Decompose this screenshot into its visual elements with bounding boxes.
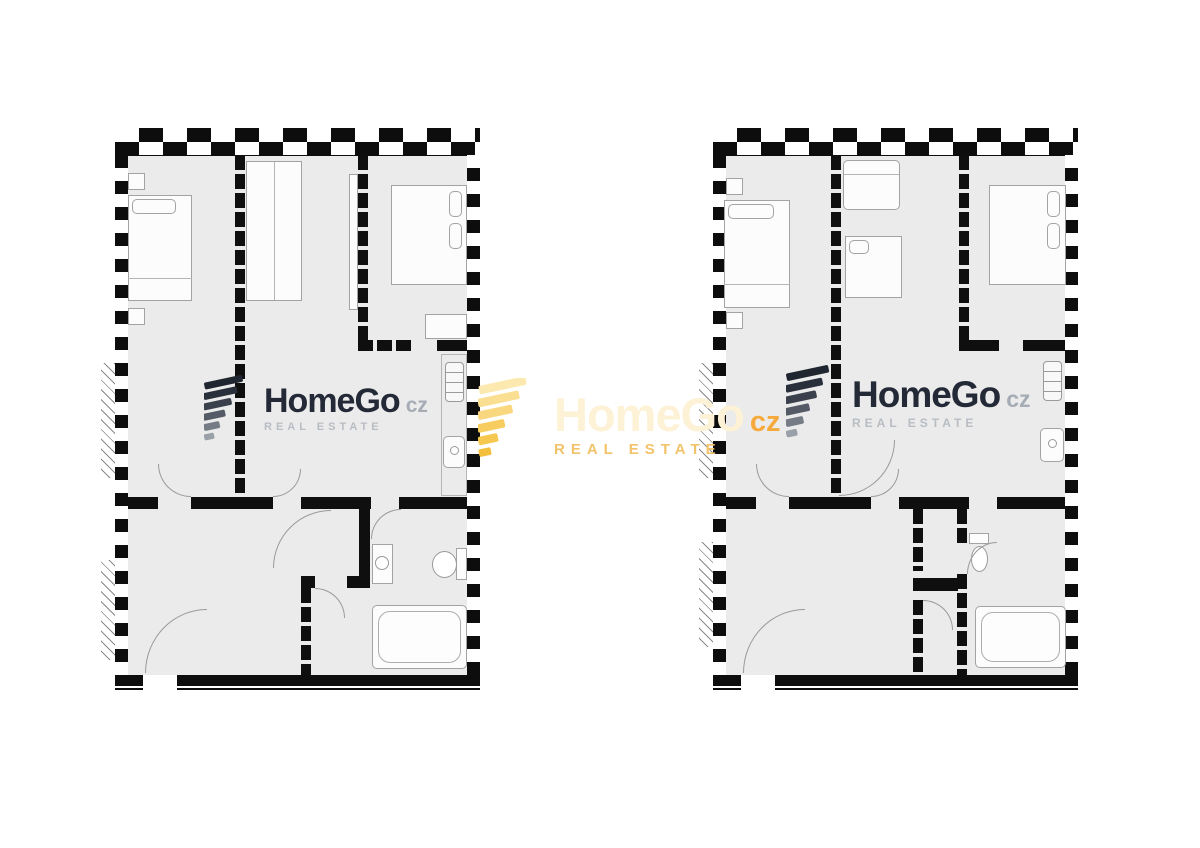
homego-watermark: HomeGo cz REAL ESTATE <box>786 364 1030 448</box>
interior-wall <box>191 497 273 509</box>
sofa <box>843 160 900 210</box>
interior-wall <box>959 155 969 340</box>
window-hatch <box>101 560 115 660</box>
wardrobe-divider <box>274 162 275 300</box>
interior-wall <box>437 340 467 351</box>
homego-fan-icon <box>478 378 548 466</box>
interior-wall <box>301 497 371 509</box>
window-hatch <box>101 363 115 478</box>
radiator <box>1043 361 1062 401</box>
radiator <box>445 362 464 402</box>
interior-wall <box>913 509 923 571</box>
bed-fold-line <box>128 278 192 279</box>
nightstand <box>726 178 743 195</box>
pillow <box>449 223 462 249</box>
homego-tagline: REAL ESTATE <box>264 422 428 433</box>
toilet-tank <box>456 548 467 580</box>
sink-drain <box>450 446 459 455</box>
bathtub-basin <box>378 611 461 663</box>
interior-wall <box>913 578 958 591</box>
interior-wall <box>957 574 967 675</box>
interior-wall <box>957 509 967 545</box>
homego-suffix: cz <box>1006 388 1030 411</box>
homego-brand-text: HomeGo <box>554 391 744 438</box>
shelf <box>349 174 358 310</box>
entry-door-opening <box>143 675 177 692</box>
interior-wall <box>899 497 969 509</box>
bed-fold-line <box>724 284 790 285</box>
interior-wall <box>726 497 756 509</box>
sink-drain <box>1048 439 1057 448</box>
interior-wall <box>1023 340 1065 351</box>
nightstand <box>726 312 743 329</box>
exterior-wall-top <box>115 128 480 156</box>
nightstand <box>128 308 145 325</box>
interior-wall <box>789 497 871 509</box>
pillow <box>1047 191 1060 217</box>
washer-door <box>375 556 389 570</box>
homego-fan-icon <box>786 364 848 448</box>
pillow <box>1047 223 1060 249</box>
interior-wall <box>358 340 412 351</box>
entry-door-opening <box>741 675 775 692</box>
homego-watermark: HomeGo cz REAL ESTATE <box>204 372 428 452</box>
homego-tagline: REAL ESTATE <box>852 417 1030 429</box>
exterior-wall-right <box>1065 155 1078 675</box>
pillow <box>132 199 176 214</box>
bathtub-basin <box>981 612 1060 662</box>
homego-brand-text: HomeGo <box>852 376 1000 413</box>
interior-wall <box>358 155 368 340</box>
homego-tagline: REAL ESTATE <box>554 442 781 457</box>
toilet <box>432 551 457 578</box>
interior-wall <box>913 600 923 675</box>
pillow <box>849 240 869 254</box>
interior-wall <box>128 497 158 509</box>
interior-wall <box>301 576 315 588</box>
interior-wall <box>399 497 467 509</box>
exterior-wall-left <box>115 155 128 675</box>
window-hatch <box>699 542 713 647</box>
interior-wall <box>959 340 999 351</box>
homego-suffix: cz <box>750 408 781 437</box>
interior-wall <box>347 576 370 588</box>
interior-wall <box>301 588 311 675</box>
homego-brand-text: HomeGo <box>264 384 400 418</box>
interior-wall <box>997 497 1065 509</box>
sofa-back-line <box>844 174 899 175</box>
nightstand <box>128 173 145 190</box>
exterior-wall-top <box>713 128 1078 156</box>
dresser <box>425 314 467 339</box>
toilet-tank <box>969 533 989 544</box>
homego-watermark: HomeGo cz REAL ESTATE <box>478 378 781 466</box>
pillow <box>728 204 774 219</box>
homego-fan-icon <box>204 372 260 452</box>
floorplan-page: HomeGo cz REAL ESTATE HomeGo cz REAL EST… <box>0 0 1200 848</box>
homego-suffix: cz <box>406 395 428 416</box>
pillow <box>449 191 462 217</box>
